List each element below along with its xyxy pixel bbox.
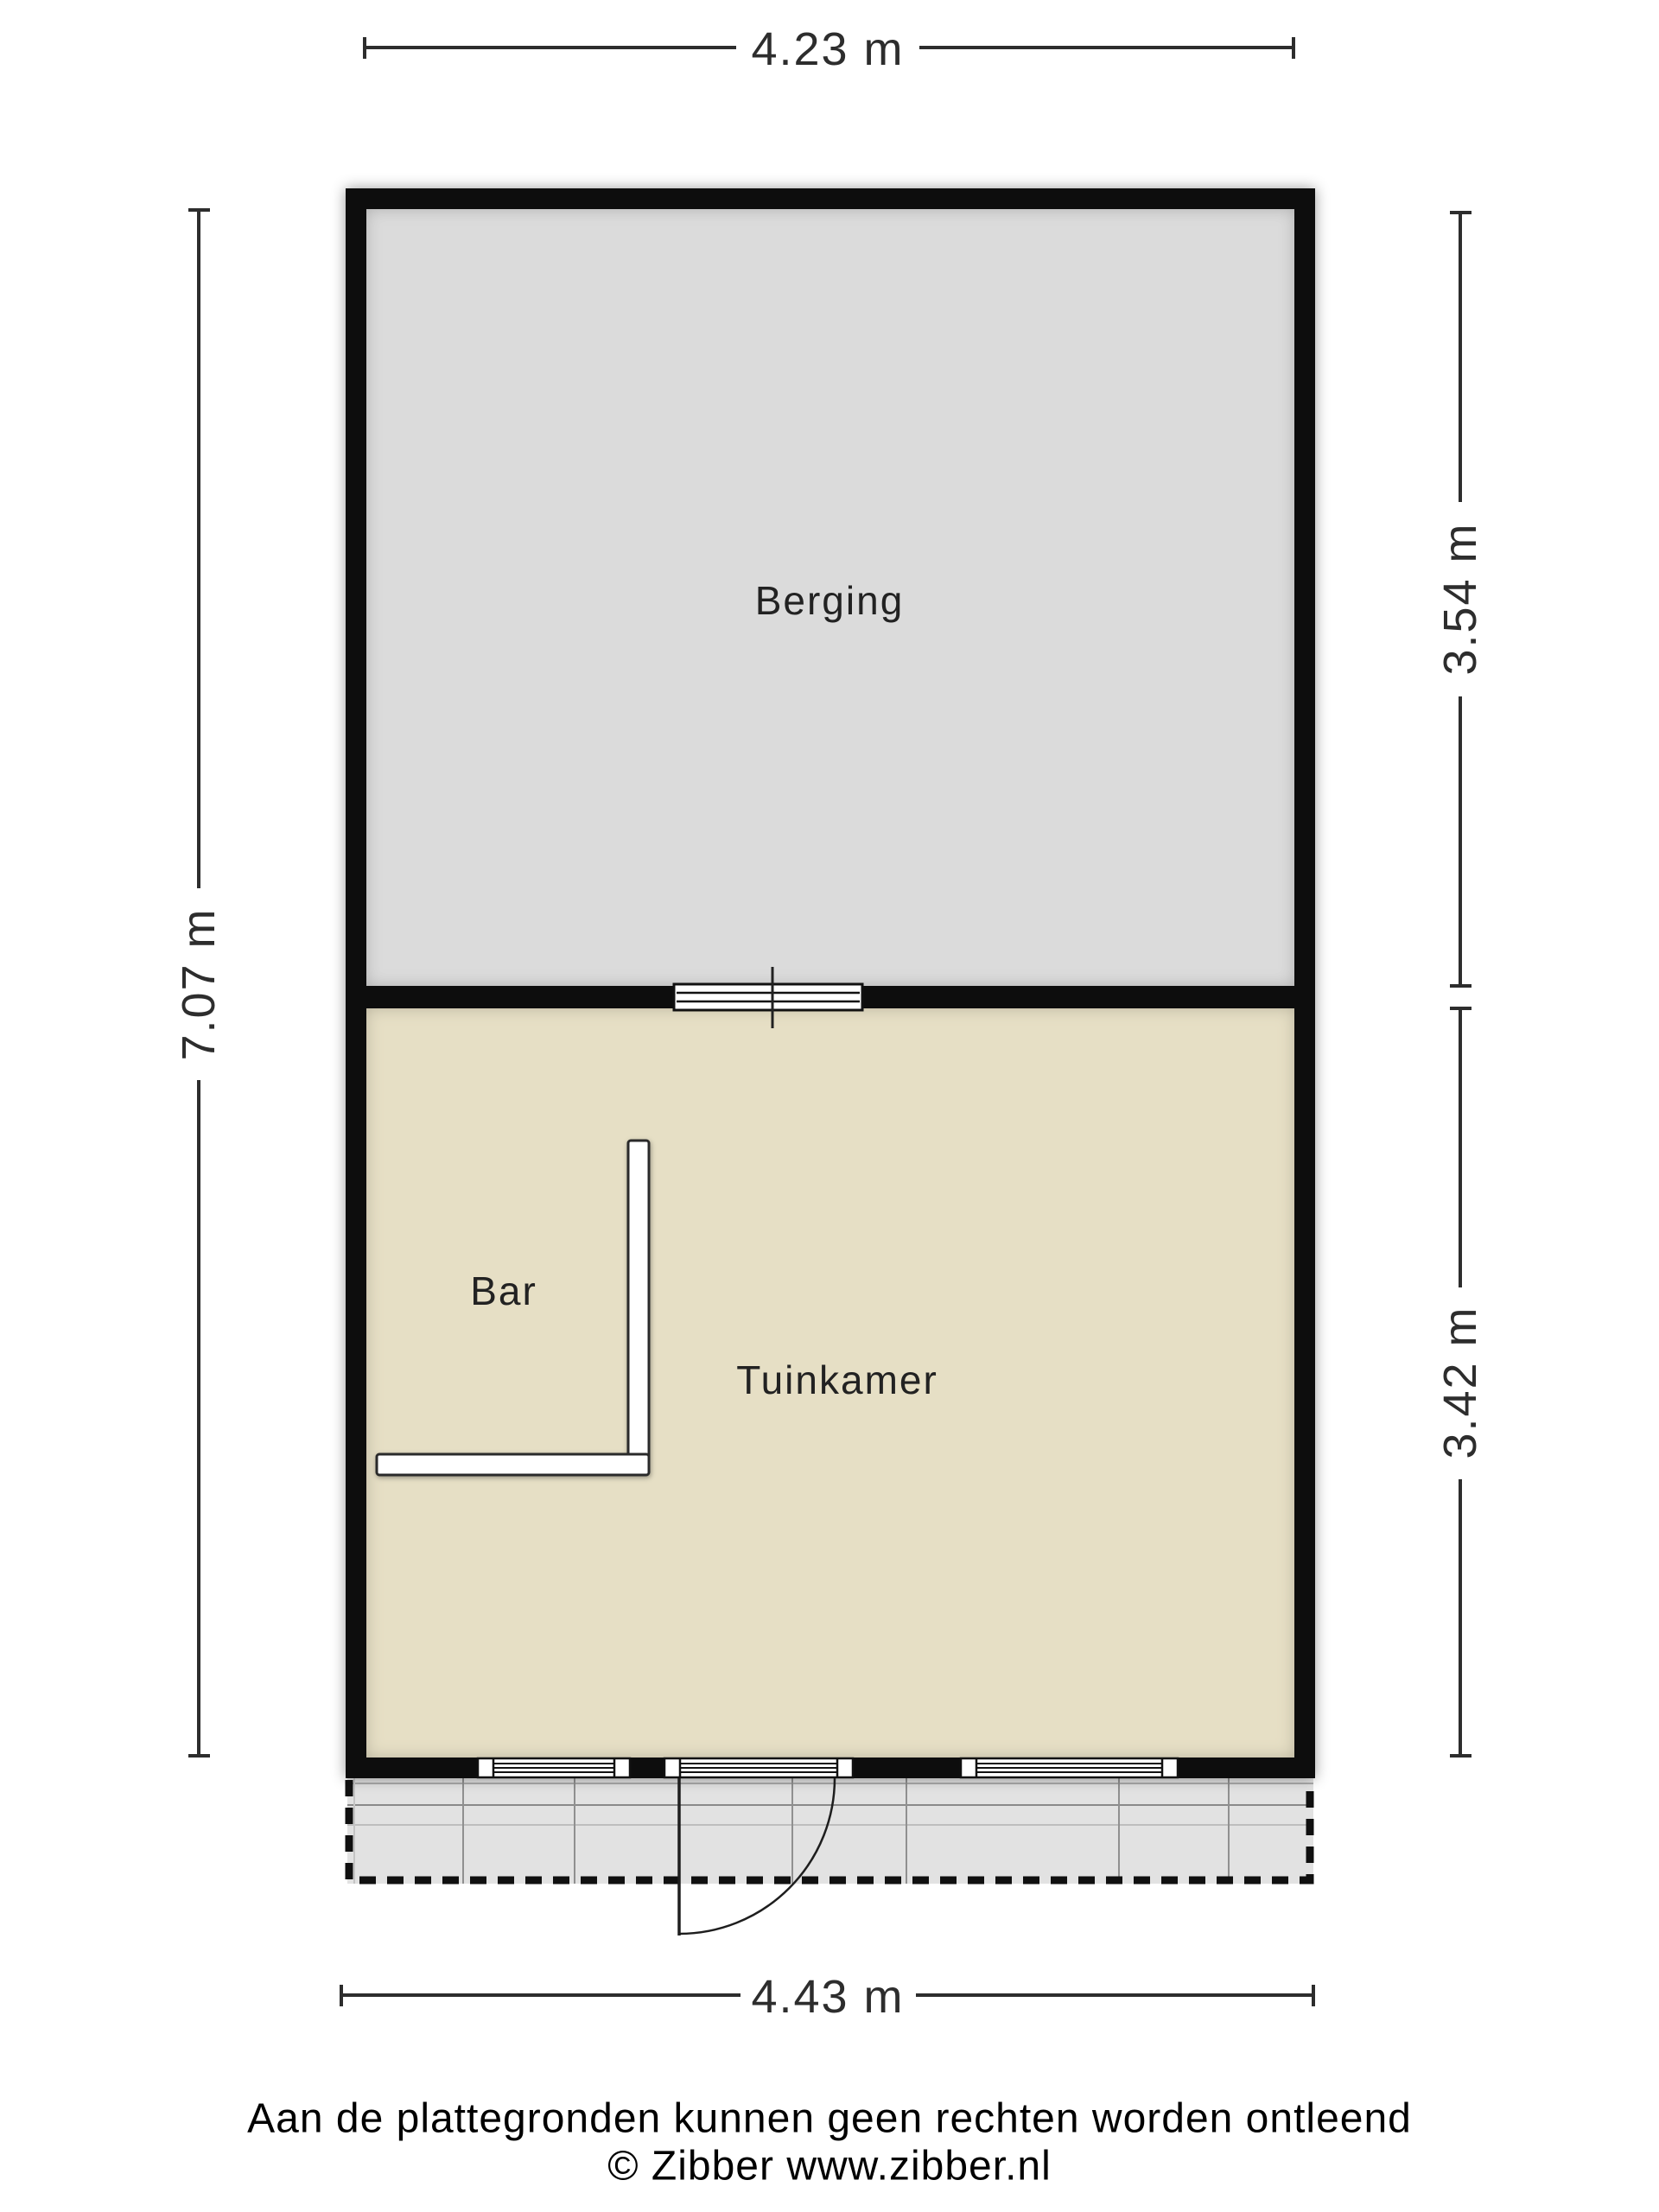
dimension-right-lower-label: 3.42 m — [1434, 1306, 1486, 1459]
bar-counter-vertical — [628, 1141, 649, 1460]
dimension-left: 7.07 m — [173, 210, 225, 1756]
dimension-right-lower: 3.42 m — [1434, 1008, 1486, 1756]
footer-copyright: © Zibber www.zibber.nl — [607, 2144, 1052, 2190]
dimension-right-upper-label: 3.54 m — [1434, 522, 1486, 675]
facade-door-window — [664, 1758, 853, 1777]
dimension-right-upper: 3.54 m — [1434, 213, 1486, 986]
facade-window-left — [478, 1758, 630, 1777]
dimension-left-label: 7.07 m — [173, 907, 225, 1060]
terrace-floor — [347, 1778, 1313, 1884]
room-label-bar: Bar — [470, 1268, 537, 1313]
footer-disclaimer: Aan de plattegronden kunnen geen rechten… — [247, 2096, 1412, 2142]
dimension-bottom: 4.43 m — [341, 1971, 1313, 2023]
floorplan-canvas: Berging Bar Tuinkamer 4.23 m 4.43 m 7.07… — [0, 0, 1659, 2212]
dimension-top-label: 4.23 m — [751, 23, 904, 75]
room-label-berging: Berging — [755, 578, 905, 623]
dimension-bottom-label: 4.43 m — [751, 1971, 904, 2023]
interior-window-frame — [674, 984, 862, 1010]
facade-window-right — [961, 1758, 1178, 1777]
floorplan-page: Berging Bar Tuinkamer 4.23 m 4.43 m 7.07… — [0, 0, 1659, 2212]
bar-counter-horizontal — [377, 1454, 649, 1475]
dimension-top: 4.23 m — [365, 23, 1294, 75]
room-label-tuinkamer: Tuinkamer — [736, 1357, 938, 1402]
terrace — [347, 1778, 1313, 1884]
